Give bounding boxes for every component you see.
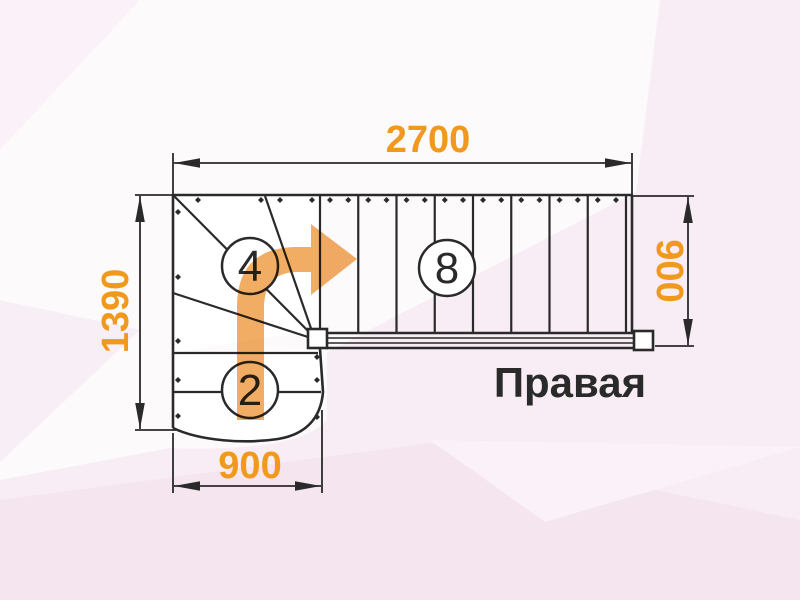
arrowhead-up — [135, 196, 145, 222]
dim-label-right: 900 — [648, 239, 690, 302]
screw-dot — [384, 197, 390, 203]
plan-svg: 4 8 2 2700 1390 — [0, 0, 800, 600]
upper-steps-count: 8 — [435, 244, 459, 293]
arrowhead-left — [174, 158, 200, 168]
screw-dot — [518, 197, 524, 203]
bg-topleft-tri — [0, 0, 140, 150]
dim-label-top: 2700 — [386, 119, 471, 161]
screw-dot — [327, 197, 333, 203]
screw-dot — [422, 197, 428, 203]
screw-dot — [537, 197, 543, 203]
dim-label-bottom: 900 — [218, 445, 281, 487]
stair-plan-diagram: 4 8 2 2700 1390 — [0, 0, 800, 600]
screw-dot — [442, 197, 448, 203]
dimension-left: 1390 — [95, 195, 176, 430]
screw-dot — [498, 197, 504, 203]
screw-dot — [557, 197, 563, 203]
arrowhead-right — [605, 158, 631, 168]
screw-dot — [480, 197, 486, 203]
screw-dot — [575, 197, 581, 203]
arrowhead-down — [135, 403, 145, 429]
newel-post-right — [634, 331, 653, 350]
screw-dot — [460, 197, 466, 203]
dim-label-left: 1390 — [95, 269, 137, 354]
dimension-top: 2700 — [173, 119, 632, 195]
newel-post-left — [308, 329, 327, 348]
screw-dot — [365, 197, 371, 203]
orientation-label: Правая — [494, 359, 646, 406]
screw-dot — [595, 197, 601, 203]
screw-dot — [404, 197, 410, 203]
screw-dot — [345, 197, 351, 203]
